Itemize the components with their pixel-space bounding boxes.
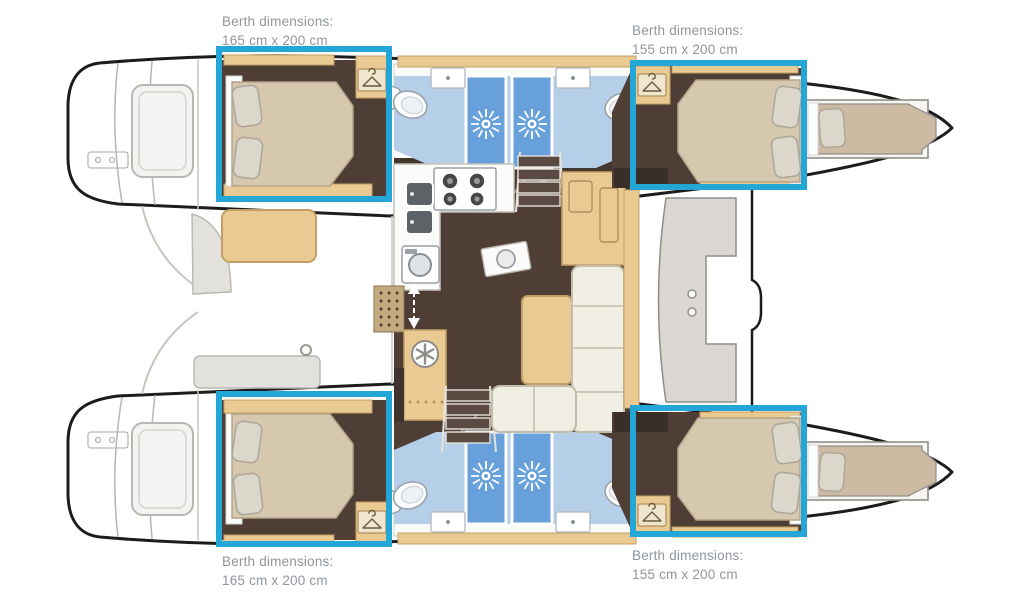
berth-label-bottom-right: Berth dimensions: 155 cm x 200 cm [632,546,743,584]
berth-label-top-left: Berth dimensions: 165 cm x 200 cm [222,12,333,50]
stern-hatch [132,423,193,515]
stairs-to-port-hull [516,152,564,212]
bathrooms-port [381,56,650,168]
berth-label-bottom-left: Berth dimensions: 165 cm x 200 cm [222,552,333,590]
entry-mat [374,286,404,332]
berth-label-title: Berth dimensions: [632,21,743,40]
washer-icon [402,246,439,283]
salon-table [522,296,572,384]
bridgedeck-front-edge [752,186,761,414]
berth-label-title: Berth dimensions: [222,12,333,31]
cockpit-bench [194,356,320,388]
pillow [818,108,845,148]
bow-berth-starboard [806,442,936,500]
berth-label-size: 155 cm x 200 cm [632,565,743,584]
pillow [818,452,845,492]
berth-highlight-bottom-left [216,391,392,547]
boat-deck-plan: Berth dimensions: 165 cm x 200 cm Berth … [0,0,1024,600]
stairs-to-starboard-hull [442,386,496,452]
foredeck-lounge [624,186,761,414]
berth-highlight-bottom-right [630,405,807,537]
berth-label-size: 165 cm x 200 cm [222,31,333,50]
stern-hatch [132,85,193,177]
foredeck-couch [659,198,737,402]
berth-highlight-top-left [216,46,392,202]
stove-icon [434,168,496,210]
berth-label-top-right: Berth dimensions: 155 cm x 200 cm [632,21,743,59]
berth-label-title: Berth dimensions: [632,546,743,565]
bow-berth-port [806,100,936,158]
berth-label-size: 155 cm x 200 cm [632,40,743,59]
boat-floor-plan-illustration [0,0,1024,600]
aft-cockpit [142,206,392,394]
berth-highlight-top-right [630,60,807,190]
bathrooms-starboard [381,432,650,544]
cockpit-table [222,210,316,262]
berth-label-title: Berth dimensions: [222,552,333,571]
porthole [301,345,311,355]
berth-label-size: 165 cm x 200 cm [222,571,333,590]
